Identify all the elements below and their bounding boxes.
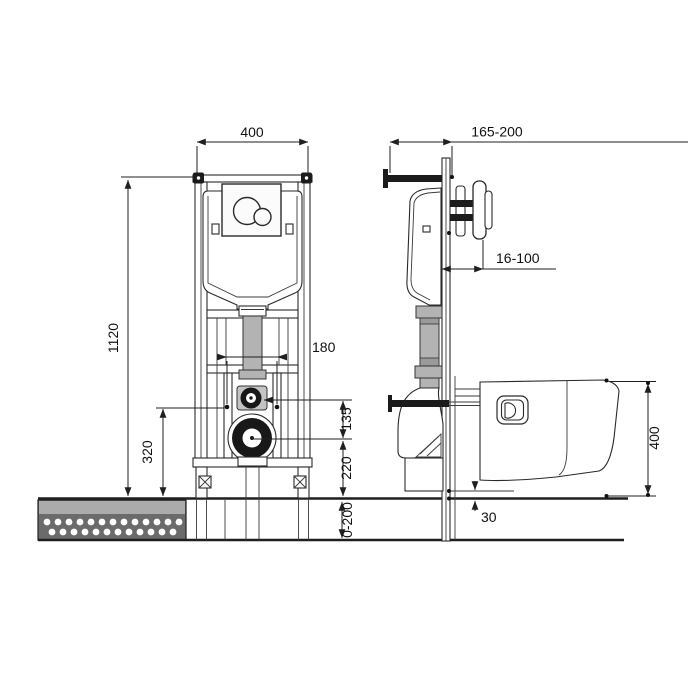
bowl-fixation-access <box>497 396 528 424</box>
dim-label-frame-width: 400 <box>240 124 264 140</box>
toilet-bowl-side <box>480 380 619 481</box>
dim-label-leg-adjustment: 0-200 <box>339 502 355 538</box>
dim-outlet-height: 220 <box>338 441 354 496</box>
frame-corner-bolt <box>193 173 204 184</box>
dim-label-inlet-to-outlet: 135 <box>338 407 354 431</box>
dim-label-bowl-height: 400 <box>646 426 662 450</box>
flush-plate-side-assembly <box>447 181 492 239</box>
dim-label-outlet-height: 220 <box>338 456 354 480</box>
installation-frame-technical-drawing: 400 1120 320 180 135 220 <box>0 0 700 700</box>
dim-label-frame-depth: 165-200 <box>471 124 523 140</box>
dim-frame-depth: 165-200 <box>390 124 688 180</box>
dim-label-frame-height: 1120 <box>105 323 121 353</box>
frame-corner-bolt <box>301 173 312 184</box>
drawing-canvas: 400 1120 320 180 135 220 <box>0 0 700 700</box>
floor-hatch-strip <box>38 500 186 540</box>
flush-button-small <box>254 209 271 226</box>
flush-pipe-front <box>239 306 266 379</box>
dim-floor-gap: 30 <box>475 481 497 525</box>
floor-anchor <box>294 476 306 488</box>
dim-label-floor-gap: 30 <box>481 509 497 525</box>
fixing-stud-left <box>225 405 230 410</box>
fixing-stud-right <box>275 405 280 410</box>
flush-plate <box>212 184 293 236</box>
dim-leg-adjustment: 0-200 <box>339 502 355 538</box>
dim-wall-clearance: 16-100 <box>442 240 556 269</box>
water-supply-connection <box>237 386 267 410</box>
front-view <box>193 173 312 541</box>
side-view <box>383 158 619 541</box>
flush-pipe-side <box>415 306 442 388</box>
dim-label-wall-clearance: 16-100 <box>496 250 540 266</box>
waste-outlet <box>228 414 276 540</box>
dimensions: 400 1120 320 180 135 220 <box>105 124 688 539</box>
cistern-side <box>407 188 441 305</box>
dim-label-stud-spacing: 180 <box>312 339 336 355</box>
floor-section <box>38 499 628 541</box>
floor-anchor <box>199 476 211 488</box>
dim-label-stud-height: 320 <box>139 440 155 464</box>
dim-frame-width: 400 <box>197 124 308 173</box>
wall-bracket <box>383 169 442 188</box>
